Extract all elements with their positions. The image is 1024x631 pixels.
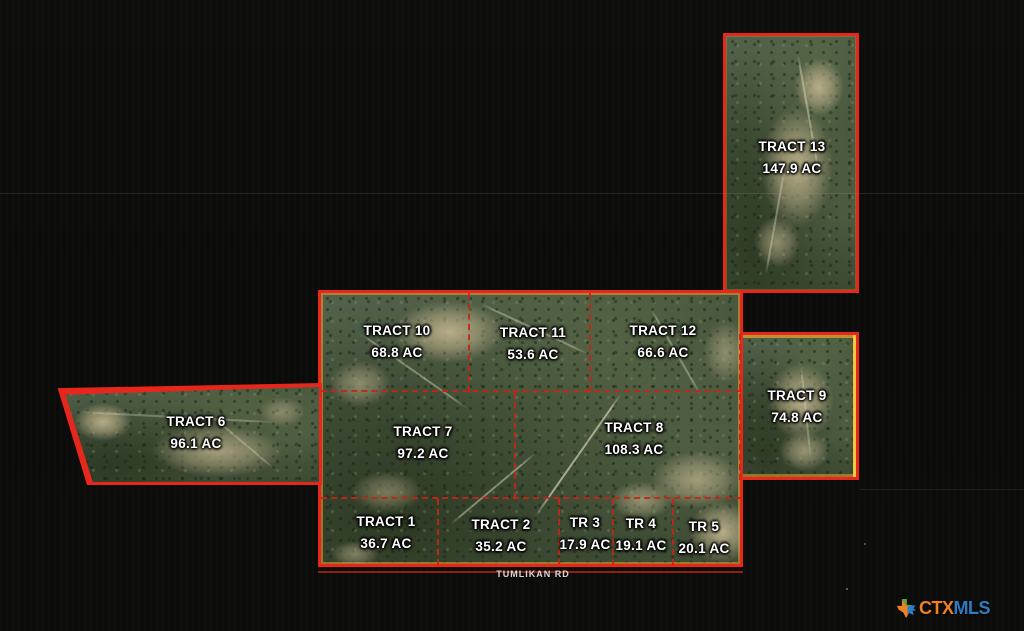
clearing-patch	[351, 471, 423, 513]
tract-name: TRACT 10	[364, 320, 431, 342]
clearing-patch	[754, 216, 800, 268]
parcel-boundary-dashed	[514, 392, 516, 499]
tract-7-label: TRACT 7 97.2 AC	[393, 421, 452, 465]
tract-acreage: 68.8 AC	[364, 342, 431, 364]
tract-10-label: TRACT 10 68.8 AC	[364, 320, 431, 364]
tract-acreage: 20.1 AC	[678, 538, 729, 560]
parcel-boundary-dashed	[321, 390, 741, 392]
parcel-boundary-dashed	[612, 499, 614, 565]
tract-13-label: TRACT 13 147.9 AC	[759, 136, 826, 180]
parcel-boundary-dashed	[468, 293, 470, 392]
clearing-patch	[74, 403, 132, 441]
tract-name: TRACT 1	[356, 511, 415, 533]
tract-acreage: 17.9 AC	[559, 534, 610, 556]
clearing-patch	[794, 58, 844, 116]
tract-acreage: 97.2 AC	[393, 443, 452, 465]
clearing-patch	[329, 361, 391, 407]
tract-4-label: TR 4 19.1 AC	[615, 513, 666, 557]
tract-name: TRACT 13	[759, 136, 826, 158]
tract-acreage: 19.1 AC	[615, 535, 666, 557]
tract-name: TRACT 9	[767, 385, 826, 407]
tract-name: TR 3	[559, 512, 610, 534]
tract-acreage: 74.8 AC	[767, 407, 826, 429]
logo-text-ctx: CTX	[919, 598, 954, 619]
clearing-patch	[779, 431, 829, 471]
road-name-label: TUMLIKAN RD	[496, 569, 570, 578]
tract-name: TRACT 6	[166, 411, 225, 433]
tract-name: TRACT 8	[604, 417, 663, 439]
scan-speck	[846, 588, 848, 590]
tract-11-label: TRACT 11 53.6 AC	[500, 322, 566, 366]
texas-logo-icon	[897, 599, 916, 618]
tract-name: TR 4	[615, 513, 666, 535]
tract-5-label: TR 5 20.1 AC	[678, 516, 729, 560]
scan-artifact-line	[0, 193, 1024, 194]
tract-name: TRACT 2	[471, 514, 530, 536]
tract-acreage: 96.1 AC	[166, 433, 225, 455]
tract-acreage: 147.9 AC	[759, 158, 826, 180]
clearing-patch	[703, 321, 743, 383]
logo-text-mls: MLS	[954, 598, 991, 619]
tract-name: TRACT 12	[630, 320, 697, 342]
tract-1-label: TRACT 1 36.7 AC	[356, 511, 415, 555]
tract-name: TRACT 11	[500, 322, 566, 344]
tract-name: TR 5	[678, 516, 729, 538]
parcel-boundary-dashed	[589, 293, 591, 392]
tract-acreage: 35.2 AC	[471, 536, 530, 558]
tract-9-label: TRACT 9 74.8 AC	[767, 385, 826, 429]
parcel-boundary-dashed	[437, 499, 439, 565]
scan-artifact-line	[859, 489, 1024, 490]
tract-acreage: 36.7 AC	[356, 533, 415, 555]
parcel-map-image: TRACT 13 147.9 AC TRACT 10 68.8 AC TRACT…	[0, 0, 1024, 631]
tract-acreage: 108.3 AC	[604, 439, 663, 461]
parcel-boundary-dashed	[672, 499, 674, 565]
tract-6-label: TRACT 6 96.1 AC	[166, 411, 225, 455]
tract-acreage: 53.6 AC	[500, 344, 566, 366]
parcel-boundary-dashed	[321, 497, 741, 499]
tract-12-label: TRACT 12 66.6 AC	[630, 320, 697, 364]
ctxmls-watermark: CTX MLS	[897, 598, 990, 619]
parcel-boundary-dashed	[739, 334, 741, 480]
tract-8-label: TRACT 8 108.3 AC	[604, 417, 663, 461]
scan-speck	[864, 543, 866, 545]
tract-name: TRACT 7	[393, 421, 452, 443]
tract-3-label: TR 3 17.9 AC	[559, 512, 610, 556]
tract-acreage: 66.6 AC	[630, 342, 697, 364]
tract-2-label: TRACT 2 35.2 AC	[471, 514, 530, 558]
